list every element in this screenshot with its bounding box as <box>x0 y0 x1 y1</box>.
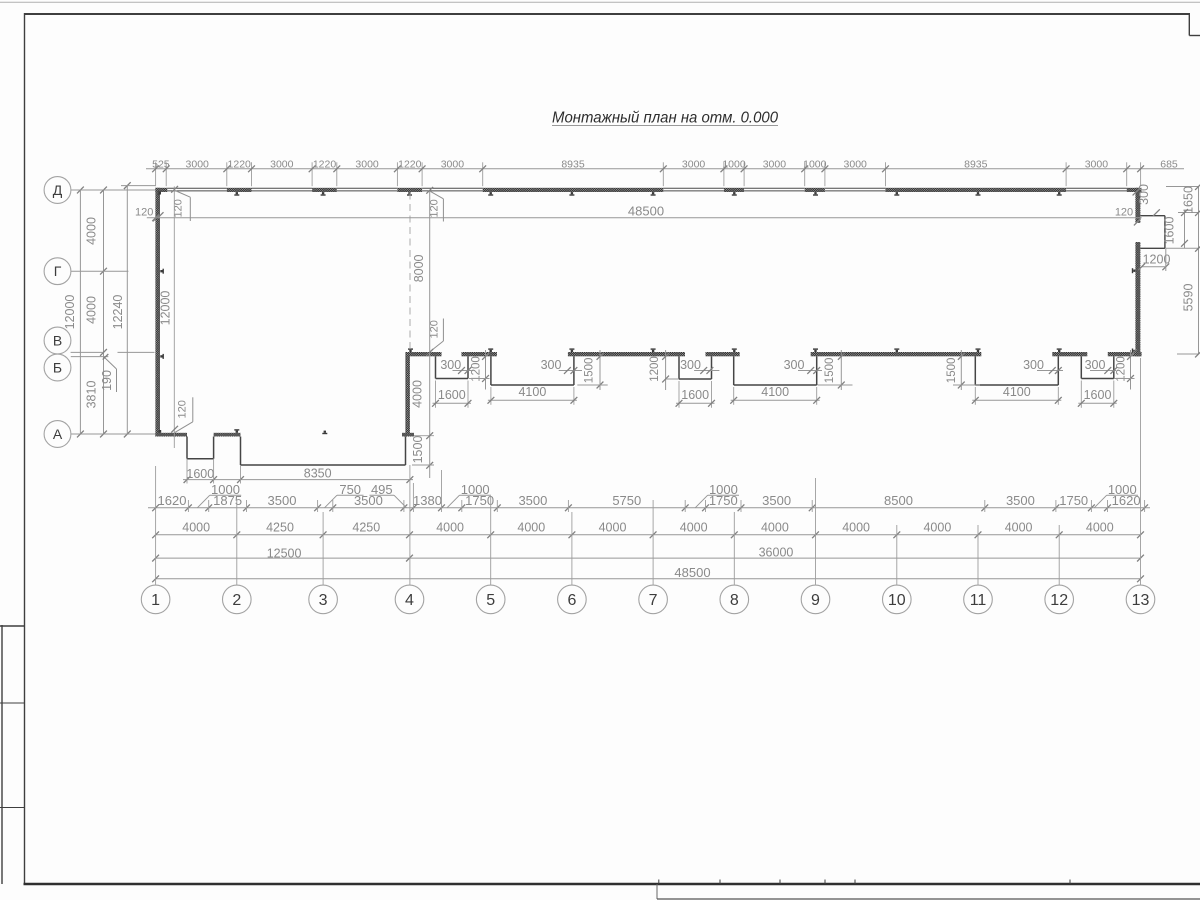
svg-text:3000: 3000 <box>441 158 465 170</box>
svg-text:685: 685 <box>1160 158 1178 170</box>
svg-text:4000: 4000 <box>599 521 627 535</box>
svg-text:1600: 1600 <box>186 467 214 481</box>
svg-text:4000: 4000 <box>680 521 708 535</box>
svg-text:3500: 3500 <box>1006 493 1035 508</box>
svg-text:1000: 1000 <box>722 158 746 170</box>
svg-text:1600: 1600 <box>1163 217 1177 245</box>
svg-text:5: 5 <box>486 592 495 609</box>
svg-text:1500: 1500 <box>946 358 958 384</box>
svg-text:120: 120 <box>429 320 441 338</box>
svg-text:4000: 4000 <box>517 521 545 535</box>
svg-text:1650: 1650 <box>1181 186 1195 214</box>
svg-text:36000: 36000 <box>759 545 794 559</box>
svg-text:7: 7 <box>649 592 658 609</box>
svg-text:1500: 1500 <box>411 436 425 464</box>
svg-text:4000: 4000 <box>761 521 789 535</box>
svg-text:8350: 8350 <box>304 466 332 480</box>
svg-text:1220: 1220 <box>313 158 337 170</box>
svg-text:120: 120 <box>135 207 153 219</box>
svg-text:4100: 4100 <box>761 385 789 399</box>
svg-text:12: 12 <box>1050 592 1068 609</box>
svg-text:300: 300 <box>440 358 461 372</box>
svg-text:8000: 8000 <box>412 254 426 282</box>
svg-text:12000: 12000 <box>159 291 173 326</box>
svg-text:1200: 1200 <box>1115 356 1127 382</box>
svg-text:11: 11 <box>970 592 987 609</box>
svg-text:12000: 12000 <box>63 295 77 330</box>
svg-text:1600: 1600 <box>681 388 709 402</box>
svg-text:4250: 4250 <box>266 521 294 535</box>
svg-text:6: 6 <box>567 592 576 609</box>
svg-text:Б: Б <box>53 360 62 376</box>
svg-text:4000: 4000 <box>182 521 210 535</box>
svg-text:8935: 8935 <box>561 158 585 170</box>
svg-text:4000: 4000 <box>923 521 951 535</box>
svg-text:300: 300 <box>784 358 805 372</box>
svg-text:1620: 1620 <box>158 493 187 508</box>
svg-text:4000: 4000 <box>1005 521 1033 535</box>
svg-text:3000: 3000 <box>1085 158 1109 170</box>
svg-text:300: 300 <box>1137 184 1151 205</box>
svg-text:4100: 4100 <box>1003 385 1031 399</box>
svg-text:1000: 1000 <box>461 482 490 497</box>
svg-text:3000: 3000 <box>355 158 379 170</box>
svg-text:8: 8 <box>730 592 739 609</box>
svg-text:4000: 4000 <box>84 296 98 324</box>
svg-text:3500: 3500 <box>762 493 791 508</box>
svg-text:1500: 1500 <box>824 358 836 384</box>
svg-text:120: 120 <box>177 400 189 418</box>
svg-text:8500: 8500 <box>884 493 913 508</box>
svg-text:1: 1 <box>151 592 160 609</box>
svg-text:3500: 3500 <box>268 493 297 508</box>
svg-text:48500: 48500 <box>628 203 664 218</box>
svg-text:300: 300 <box>541 358 562 372</box>
svg-text:48500: 48500 <box>674 565 710 580</box>
svg-text:120: 120 <box>1115 206 1133 218</box>
svg-text:495: 495 <box>371 482 393 497</box>
svg-text:9: 9 <box>811 592 820 609</box>
svg-text:300: 300 <box>680 358 701 372</box>
svg-text:190: 190 <box>100 370 114 391</box>
svg-text:120: 120 <box>429 199 441 217</box>
svg-text:525: 525 <box>152 158 170 170</box>
svg-text:3500: 3500 <box>518 493 547 508</box>
svg-text:2: 2 <box>232 592 241 609</box>
svg-text:1000: 1000 <box>211 482 240 497</box>
svg-text:1000: 1000 <box>803 158 827 170</box>
svg-text:Д: Д <box>53 182 63 198</box>
svg-text:3810: 3810 <box>84 381 98 409</box>
svg-text:13: 13 <box>1132 592 1150 609</box>
svg-text:3000: 3000 <box>763 158 787 170</box>
svg-text:1200: 1200 <box>649 356 661 382</box>
svg-text:4: 4 <box>405 592 414 609</box>
svg-text:4000: 4000 <box>411 380 425 408</box>
svg-text:А: А <box>53 426 63 442</box>
svg-text:4000: 4000 <box>84 217 98 245</box>
svg-text:3000: 3000 <box>844 158 868 170</box>
svg-text:1380: 1380 <box>413 493 442 508</box>
svg-text:12240: 12240 <box>111 295 125 330</box>
svg-text:4250: 4250 <box>352 521 380 535</box>
svg-text:10: 10 <box>888 592 906 609</box>
svg-text:1600: 1600 <box>438 388 466 402</box>
svg-text:1220: 1220 <box>228 158 252 170</box>
svg-text:300: 300 <box>1085 358 1106 372</box>
svg-text:1000: 1000 <box>1108 482 1137 497</box>
svg-text:1200: 1200 <box>471 356 483 382</box>
svg-text:3000: 3000 <box>186 158 210 170</box>
svg-text:3000: 3000 <box>270 158 294 170</box>
svg-text:5750: 5750 <box>612 493 641 508</box>
svg-text:1750: 1750 <box>1059 493 1088 508</box>
svg-text:1000: 1000 <box>709 482 738 497</box>
svg-text:5590: 5590 <box>1181 284 1195 312</box>
svg-text:12500: 12500 <box>267 546 302 560</box>
svg-text:Г: Г <box>54 263 62 279</box>
svg-text:4000: 4000 <box>1086 521 1114 535</box>
svg-text:В: В <box>53 333 62 349</box>
svg-text:300: 300 <box>1023 358 1044 372</box>
svg-text:3000: 3000 <box>682 158 706 170</box>
svg-text:1600: 1600 <box>1084 388 1112 402</box>
svg-text:4100: 4100 <box>518 385 546 399</box>
svg-text:Монтажный план на отм. 0.000: Монтажный план на отм. 0.000 <box>552 109 778 126</box>
svg-text:1220: 1220 <box>398 158 422 170</box>
svg-text:8935: 8935 <box>964 158 988 170</box>
svg-text:3: 3 <box>319 592 328 609</box>
svg-text:1500: 1500 <box>584 358 596 384</box>
svg-text:4000: 4000 <box>842 521 870 535</box>
svg-text:4000: 4000 <box>436 521 464 535</box>
svg-text:750: 750 <box>339 482 361 497</box>
